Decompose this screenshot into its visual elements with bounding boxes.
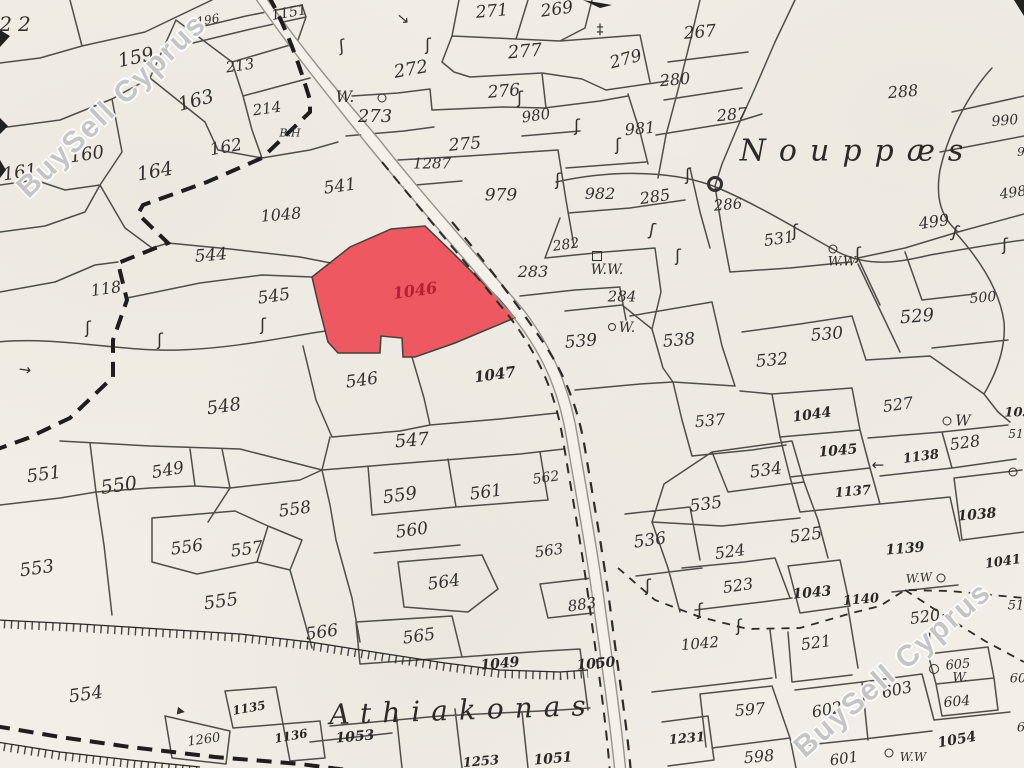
map-linework xyxy=(0,0,1024,768)
cadastral-map: 221591961151213163214B.H1621641601611048… xyxy=(0,0,1024,768)
highlighted-parcel[interactable] xyxy=(312,226,517,357)
hachure-lines xyxy=(0,620,588,768)
parcel-boundaries xyxy=(0,0,1024,768)
village-boundary xyxy=(0,0,370,768)
scan-smudges xyxy=(0,0,1024,178)
dashed-boundary xyxy=(618,568,1024,662)
